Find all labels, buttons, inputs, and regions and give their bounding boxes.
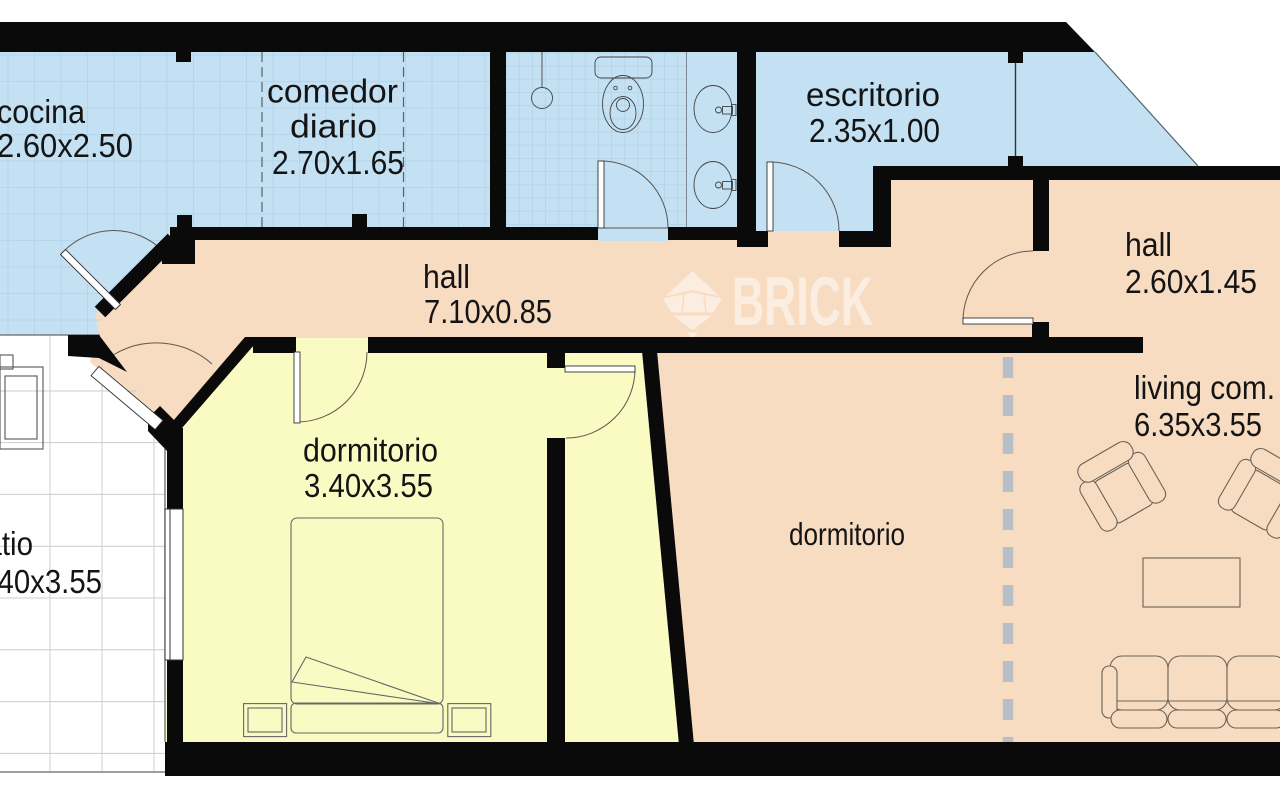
svg-text:3.40x3.55: 3.40x3.55 xyxy=(0,563,102,600)
svg-text:2.60x1.45: 2.60x1.45 xyxy=(1125,263,1257,300)
svg-text:BRICK: BRICK xyxy=(732,263,873,340)
svg-text:comedor: comedor xyxy=(267,73,398,110)
svg-text:2.35x1.00: 2.35x1.00 xyxy=(809,112,940,149)
svg-text:cocina: cocina xyxy=(0,93,86,130)
svg-text:living com.: living com. xyxy=(1134,369,1275,406)
svg-text:3.40x3.55: 3.40x3.55 xyxy=(304,467,433,504)
svg-text:patio: patio xyxy=(0,525,33,562)
svg-text:dormitorio: dormitorio xyxy=(303,432,438,469)
svg-text:2.60x2.50: 2.60x2.50 xyxy=(0,127,133,164)
svg-text:diario: diario xyxy=(290,108,377,145)
svg-text:hall: hall xyxy=(1125,226,1172,263)
svg-text:2.70x1.65: 2.70x1.65 xyxy=(272,144,404,181)
svg-text:dormitorio: dormitorio xyxy=(789,516,905,552)
svg-text:7.10x0.85: 7.10x0.85 xyxy=(424,293,552,330)
svg-text:hall: hall xyxy=(423,258,470,295)
svg-text:6.35x3.55: 6.35x3.55 xyxy=(1134,406,1262,443)
svg-text:escritorio: escritorio xyxy=(806,76,940,113)
